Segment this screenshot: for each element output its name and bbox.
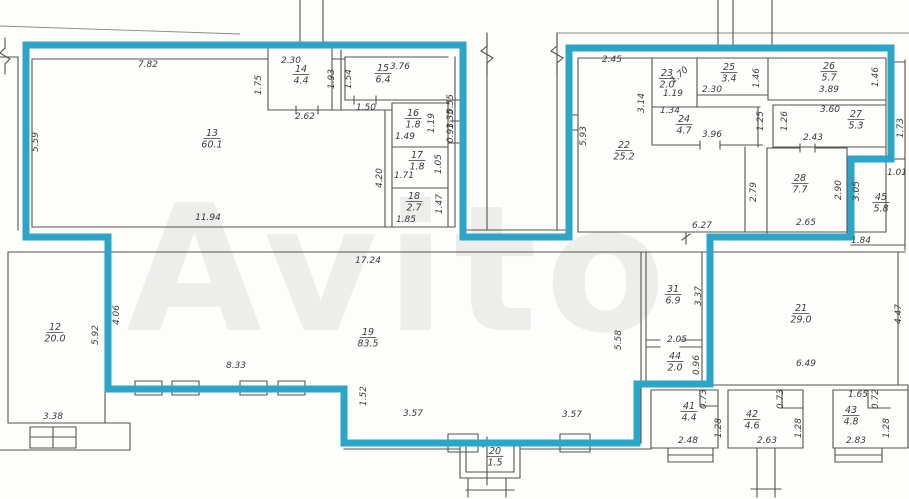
room-label: 316.9 [665, 284, 682, 307]
room-area: 1.8 [405, 120, 420, 131]
dimension-label: 1.75 [254, 75, 264, 95]
dimension-label: 1.47 [435, 194, 445, 214]
dimension-label: 2.48 [678, 436, 698, 446]
room-label: 182.7 [406, 191, 423, 214]
room-area: 4.4 [293, 76, 308, 87]
break-mark-icon [0, 38, 10, 74]
dimension-label: 2.30 [281, 56, 301, 66]
dimension-label: 0.73 [776, 389, 786, 409]
room-area: 20.0 [44, 334, 65, 345]
dimension-label: 11.94 [195, 213, 221, 223]
room-area: 83.5 [357, 339, 378, 350]
dimension-label: 1.46 [752, 68, 762, 88]
dimension-label: 1.85 [396, 215, 416, 225]
floor-plan-svg: Avito [0, 0, 909, 499]
room-label: 1220.0 [44, 322, 65, 345]
dimension-label: 1.28 [714, 418, 724, 438]
dimension-label: 3.37 [694, 286, 704, 306]
room-number: 45 [875, 192, 887, 203]
room-area: 2.7 [406, 203, 421, 214]
dimension-label: 2.65 [796, 218, 816, 228]
dimension-label: 1.25 [756, 111, 766, 131]
dimension-label: 0.72 [871, 389, 881, 409]
room-number: 28 [794, 173, 806, 184]
outer-wall-line [0, 26, 909, 34]
room-label: 253.4 [721, 62, 738, 85]
room-area: 5.7 [821, 73, 836, 84]
dimension-label: 1.73 [896, 118, 906, 138]
room-area: 7.7 [792, 185, 807, 196]
dimension-label: 1.71 [394, 171, 414, 181]
room-label: 1360.1 [201, 128, 222, 151]
dimension-label: 3.60 [820, 105, 840, 115]
dimension-label: 3.76 [390, 62, 410, 72]
room-area: 2.0 [667, 363, 682, 374]
room-number: 42 [746, 409, 758, 420]
room-area: 6.4 [375, 75, 390, 86]
dimension-label: 2.05 [667, 335, 687, 345]
room-label: 287.7 [792, 173, 809, 196]
room-number: 44 [669, 351, 681, 362]
room-number: 19 [362, 327, 374, 338]
dimension-label: 5.93 [579, 126, 589, 146]
room-area: 4.8 [843, 417, 858, 428]
break-mark-icon [551, 34, 563, 75]
dimension-label: 5.92 [91, 325, 101, 345]
dimension-label: 3.57 [562, 410, 582, 420]
dimension-label: 2.90 [834, 180, 844, 200]
break-marks [0, 34, 563, 75]
room-area: 5.8 [873, 204, 888, 215]
room-number: 20 [489, 446, 501, 457]
room-number: 18 [408, 191, 420, 202]
survey-tick [682, 232, 690, 244]
dimension-label: 2.79 [749, 182, 759, 202]
dimension-label: 1.19 [427, 113, 437, 133]
stairs-left [30, 427, 76, 448]
dimension-label: 1.93 [327, 69, 337, 89]
dimension-label: 2.45 [602, 55, 622, 65]
dimension-label: 4.06 [112, 305, 122, 325]
dimension-label: 1.54 [344, 69, 354, 89]
upper-wall-stubs [300, 0, 772, 47]
room-area: 60.1 [201, 140, 222, 151]
room-area: 1.5 [487, 458, 502, 469]
room-label: 424.6 [744, 409, 761, 432]
room-number: 26 [823, 61, 835, 72]
dimension-label: 3.57 [403, 409, 423, 419]
room-area: 5.3 [848, 121, 863, 132]
room-area: 6.9 [665, 296, 680, 307]
dimension-label: 7.82 [138, 60, 158, 70]
dimension-label: 2.62 [295, 112, 315, 122]
room-area: 4.4 [681, 413, 696, 424]
room-label: 265.7 [821, 61, 838, 84]
room-label: 144.4 [293, 64, 310, 87]
room-number: 41 [683, 401, 695, 412]
room-label: 201.5 [487, 446, 504, 469]
right-edge-walls [851, 60, 905, 250]
dimension-label: 6.49 [796, 359, 816, 369]
room-label: 275.3 [848, 109, 865, 132]
room-label: 156.4 [375, 63, 392, 86]
room-number: 43 [845, 405, 857, 416]
dimension-label: 3.96 [702, 130, 722, 140]
dimension-label: 2.30 [702, 85, 722, 95]
dimension-label: 2.63 [757, 436, 777, 446]
room-label: 161.8 [405, 108, 422, 131]
room-number: 15 [377, 63, 389, 74]
dimension-label: 0.73 [699, 389, 709, 409]
dimension-label: 1.01 [887, 168, 907, 178]
dimension-label: 4.20 [375, 168, 385, 188]
dimension-label: 1.52 [359, 386, 369, 406]
dimension-label: 1.46 [871, 67, 881, 87]
room-number: 22 [618, 140, 630, 151]
dimension-label: 17.24 [355, 256, 381, 266]
room-label: 434.8 [843, 405, 860, 428]
room-label: 442.0 [667, 351, 684, 374]
dimension-label: 1.49 [395, 132, 415, 142]
room-area: 3.4 [721, 74, 736, 85]
dimension-label: 1.50 [356, 103, 376, 113]
room-label: 2129.0 [790, 303, 811, 326]
room-label: 414.4 [681, 401, 698, 424]
dimension-label: 3.05 [852, 181, 862, 201]
dimension-label: 1.19 [663, 89, 683, 99]
watermark: Avito [126, 169, 673, 372]
dimension-label: 0.96 [692, 355, 702, 375]
dimension-label: 1.28 [794, 418, 804, 438]
dimension-label: 2.43 [803, 133, 823, 143]
room-area: 25.2 [613, 152, 634, 163]
floor-plan-page: Avito [0, 0, 909, 499]
dimension-label: 1.34 [660, 106, 680, 116]
room-number: 27 [850, 109, 862, 120]
dimension-label: 1.26 [780, 111, 790, 131]
dimension-label: 5.58 [614, 330, 624, 350]
room-number: 16 [407, 108, 419, 119]
room-number: 25 [723, 62, 735, 73]
dimension-label: 0.93 [446, 123, 456, 143]
room-area: 29.0 [790, 315, 811, 326]
room-number: 21 [795, 303, 807, 314]
dimension-label: 1.05 [434, 154, 444, 174]
room-number: 13 [206, 128, 218, 139]
dimension-label: 4.47 [894, 304, 904, 324]
room-label: 455.8 [873, 192, 890, 215]
dimension-label: 5.59 [31, 132, 41, 152]
dimension-label: 1.84 [851, 236, 871, 246]
room-label: 2225.2 [613, 140, 634, 163]
room-label: 171.8 [409, 150, 426, 173]
room-number: 12 [49, 322, 61, 333]
room-area: 4.7 [676, 126, 691, 137]
room-label: 244.7 [676, 114, 693, 137]
dimension-label: 3.14 [637, 93, 647, 113]
dimension-label: 6.27 [692, 221, 712, 231]
dimension-label: 3.38 [43, 412, 63, 422]
room-number: 31 [667, 284, 679, 295]
dimension-label: 3.89 [819, 85, 839, 95]
room-number: 17 [411, 150, 423, 161]
dimension-label: 1.65 [848, 390, 868, 400]
room-area: 4.6 [744, 421, 759, 432]
dimension-label: 2.83 [846, 436, 866, 446]
dimension-label: 8.33 [226, 361, 246, 371]
dimension-label: 1.28 [882, 418, 892, 438]
left-strip-walls [0, 57, 18, 230]
break-mark-icon [481, 34, 493, 75]
